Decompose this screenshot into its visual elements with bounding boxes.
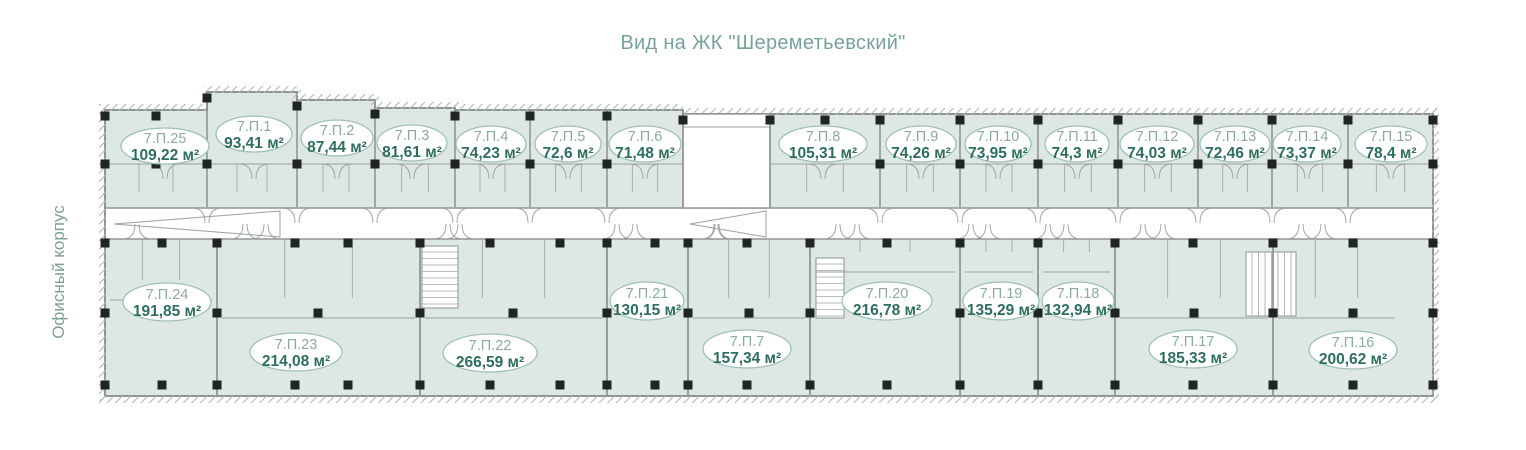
unit-area: 72,6 м² [542, 145, 593, 162]
unit-area: 266,59 м² [456, 354, 524, 371]
unit-id: 7.П.10 [977, 129, 1020, 145]
unit-area: 81,61 м² [382, 144, 442, 161]
floor-plan: 7.П.25109,22 м²7.П.193,41 м²7.П.287,44 м… [0, 0, 1526, 450]
unit-label[interactable]: 7.П.20216,78 м² [842, 282, 932, 320]
unit-label[interactable]: 7.П.23214,08 м² [250, 333, 342, 371]
unit-area: 74,23 м² [461, 145, 521, 162]
unit-area: 185,33 м² [1159, 350, 1227, 367]
unit-id: 7.П.4 [474, 129, 509, 145]
unit-label[interactable]: 7.П.25109,22 м² [121, 128, 209, 164]
unit-label[interactable]: 7.П.974,26 м² [886, 126, 956, 162]
unit-area: 130,15 м² [613, 302, 681, 319]
unit-id: 7.П.14 [1286, 129, 1329, 145]
unit-id: 7.П.24 [146, 287, 189, 303]
stair-core [683, 114, 770, 208]
building-axis-label: Офисный корпус [49, 162, 71, 382]
unit-id: 7.П.7 [730, 334, 765, 350]
unit-area: 135,29 м² [967, 302, 1035, 319]
unit-label[interactable]: 7.П.8105,31 м² [779, 126, 867, 162]
unit-label[interactable]: 7.П.474,23 м² [456, 126, 526, 162]
unit-label[interactable]: 7.П.18132,94 м² [1042, 282, 1114, 320]
unit-id: 7.П.5 [551, 129, 586, 145]
unit-area: 200,62 м² [1319, 351, 1387, 368]
unit-id: 7.П.1 [237, 119, 272, 135]
unit-label[interactable]: 7.П.1372,46 м² [1200, 126, 1270, 162]
unit-area: 109,22 м² [131, 147, 199, 164]
unit-area: 216,78 м² [853, 302, 921, 319]
unit-area: 105,31 м² [789, 145, 857, 162]
unit-id: 7.П.12 [1136, 129, 1179, 145]
unit-label[interactable]: 7.П.7157,34 м² [703, 330, 791, 368]
unit-id: 7.П.2 [320, 123, 355, 139]
corridor [105, 208, 1433, 239]
unit-label[interactable]: 7.П.1473,37 м² [1273, 126, 1341, 162]
unit-id: 7.П.22 [469, 338, 512, 354]
unit-id: 7.П.16 [1332, 335, 1375, 351]
unit-area: 93,41 м² [224, 135, 284, 152]
unit-label[interactable]: 7.П.671,48 м² [609, 126, 681, 162]
unit-id: 7.П.9 [904, 129, 939, 145]
unit-label[interactable]: 7.П.21130,15 м² [610, 282, 684, 320]
unit-label[interactable]: 7.П.17185,33 м² [1149, 330, 1237, 368]
unit-area: 78,4 м² [1365, 145, 1416, 162]
unit-id: 7.П.19 [980, 286, 1023, 302]
unit-label[interactable]: 7.П.381,61 м² [377, 125, 447, 161]
unit-label[interactable]: 7.П.287,44 м² [301, 120, 373, 156]
unit-label[interactable]: 7.П.193,41 м² [216, 116, 292, 152]
unit-label[interactable]: 7.П.1274,03 м² [1120, 126, 1194, 162]
unit-label[interactable]: 7.П.16200,62 м² [1309, 331, 1397, 369]
view-title: Вид на ЖК "Шереметьевский" [0, 32, 1526, 55]
unit-area: 157,34 м² [713, 350, 781, 367]
floor-plan-page: Вид на ЖК "Шереметьевский" Офисный корпу… [0, 0, 1526, 450]
unit-id: 7.П.6 [628, 129, 663, 145]
unit-area: 214,08 м² [262, 353, 330, 370]
unit-id: 7.П.25 [144, 131, 187, 147]
unit-label[interactable]: 7.П.1174,3 м² [1045, 126, 1109, 162]
unit-id: 7.П.21 [626, 286, 669, 302]
unit-area: 87,44 м² [307, 139, 367, 156]
unit-label[interactable]: 7.П.1073,95 м² [965, 126, 1031, 162]
unit-id: 7.П.8 [806, 129, 841, 145]
unit-label[interactable]: 7.П.24191,85 м² [123, 283, 211, 321]
unit-label[interactable]: 7.П.19135,29 м² [963, 282, 1039, 320]
unit-area: 191,85 м² [133, 303, 201, 320]
unit-id: 7.П.11 [1056, 129, 1098, 145]
unit-id: 7.П.18 [1057, 286, 1100, 302]
unit-area: 71,48 м² [615, 145, 675, 162]
unit-label[interactable]: 7.П.22266,59 м² [443, 334, 537, 372]
unit-label[interactable]: 7.П.1578,4 м² [1355, 126, 1427, 162]
unit-id: 7.П.23 [275, 337, 318, 353]
unit-area: 74,03 м² [1127, 145, 1187, 162]
unit-id: 7.П.20 [866, 286, 909, 302]
unit-id: 7.П.3 [395, 128, 430, 144]
unit-id: 7.П.15 [1370, 129, 1413, 145]
unit-id: 7.П.17 [1172, 334, 1215, 350]
unit-area: 72,46 м² [1205, 145, 1265, 162]
unit-label[interactable]: 7.П.572,6 м² [535, 126, 601, 162]
unit-area: 74,3 м² [1051, 145, 1102, 162]
unit-area: 73,37 м² [1277, 145, 1337, 162]
unit-area: 132,94 м² [1044, 302, 1112, 319]
unit-area: 74,26 м² [891, 145, 951, 162]
unit-id: 7.П.13 [1214, 129, 1257, 145]
unit-area: 73,95 м² [968, 145, 1028, 162]
